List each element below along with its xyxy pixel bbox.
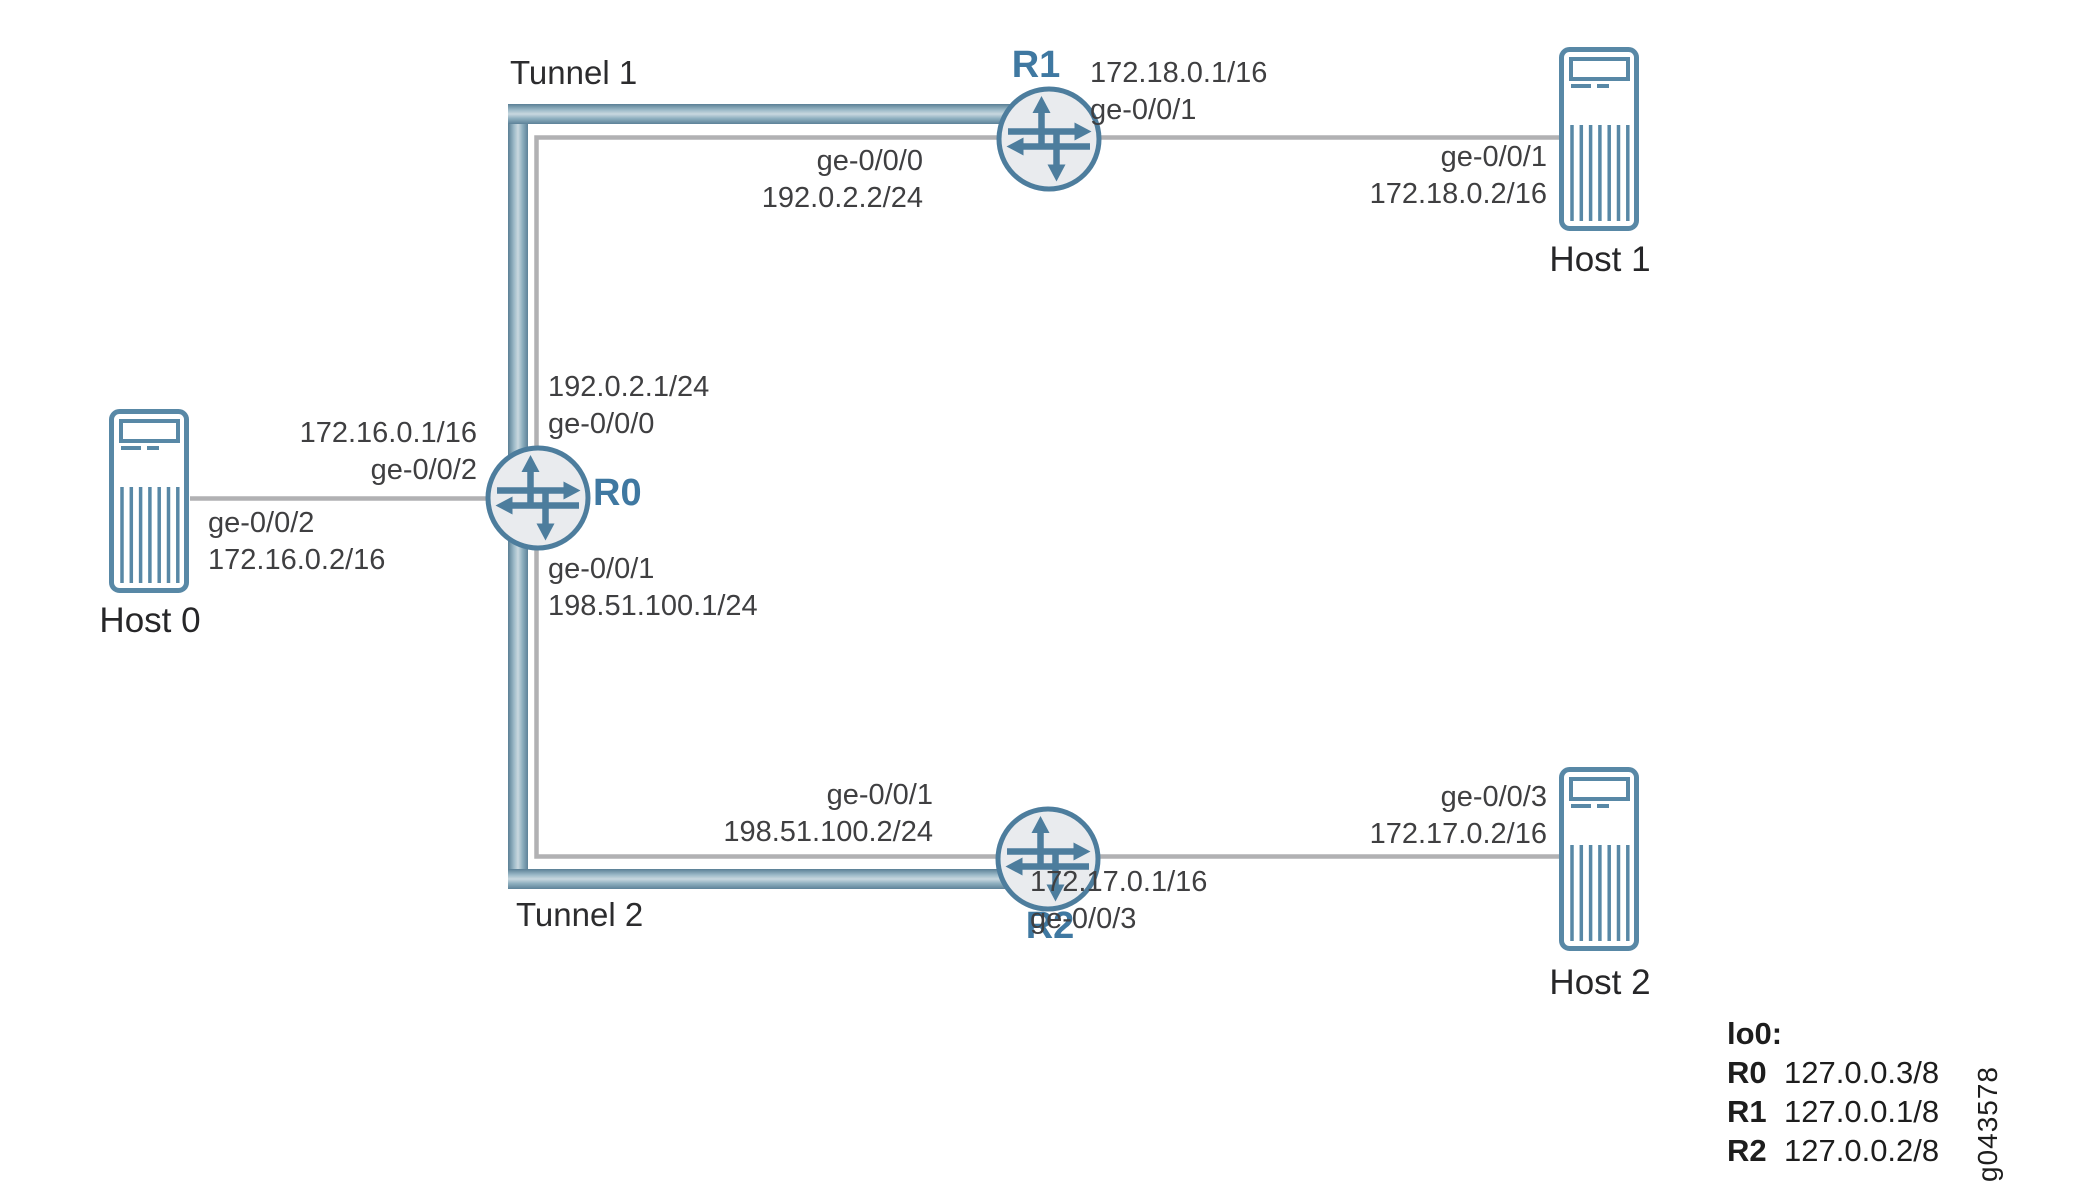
iface-label-r2-to-host2: 172.17.0.1/16 ge-0/0/3 [1030,864,1207,938]
iface-label-r0-to-r1: 192.0.2.1/24 ge-0/0/0 [548,369,709,443]
iface-label-r2-to-r0: ge-0/0/1 198.51.100.2/24 [723,777,933,851]
iface-label-r0-to-host0: 172.16.0.1/16 ge-0/0/2 [300,415,477,489]
iface-line: ge-0/0/3 [1030,901,1207,938]
legend-title: lo0: [1727,1014,1939,1053]
host-label-host2: Host 2 [1520,963,1680,1003]
router-icon-r0 [483,443,593,553]
network-topology-diagram: Tunnel 1 Tunnel 2 R0 R1 R2 Host 0 Host 1… [0,0,2100,1197]
figure-id: g043578 [1972,1066,2004,1182]
router-label-r0: R0 [593,472,642,515]
iface-line: 192.0.2.1/24 [548,369,709,406]
tunnel2-band-horizontal [508,869,1049,889]
legend-row-r0: R0127.0.0.3/8 [1727,1053,1939,1092]
iface-line: ge-0/0/1 [723,777,933,814]
iface-line: 172.16.0.2/16 [208,542,385,579]
legend-router-name: R1 [1727,1092,1784,1131]
host-icon-host0 [108,408,190,594]
iface-line: ge-0/0/0 [548,406,709,443]
iface-line: ge-0/0/1 [1090,92,1267,129]
iface-line: ge-0/0/0 [762,143,923,180]
iface-label-r1-to-r0: ge-0/0/0 192.0.2.2/24 [762,143,923,217]
host-icon-host2 [1558,766,1640,952]
iface-line: 172.17.0.1/16 [1030,864,1207,901]
iface-label-r1-to-host1: 172.18.0.1/16 ge-0/0/1 [1090,55,1267,129]
iface-line: 192.0.2.2/24 [762,180,923,217]
legend-row-r2: R2127.0.0.2/8 [1727,1131,1939,1170]
iface-label-host1-to-r1: ge-0/0/1 172.18.0.2/16 [1370,139,1547,213]
iface-line: ge-0/0/2 [300,452,477,489]
tunnel1-label: Tunnel 1 [510,54,637,92]
iface-label-host0-to-r0: ge-0/0/2 172.16.0.2/16 [208,505,385,579]
tunnel1-band-horizontal [508,104,1049,124]
router-label-r1: R1 [976,44,1096,87]
iface-line: ge-0/0/1 [1370,139,1547,176]
legend-router-name: R2 [1727,1131,1784,1170]
legend-loopback-ip: 127.0.0.3/8 [1784,1055,1939,1090]
iface-label-r0-to-r2: ge-0/0/1 198.51.100.1/24 [548,551,758,625]
iface-line: ge-0/0/2 [208,505,385,542]
iface-line: ge-0/0/1 [548,551,758,588]
legend-row-r1: R1127.0.0.1/8 [1727,1092,1939,1131]
link-r0-r1-r2-hosts [537,138,1561,857]
iface-line: 198.51.100.1/24 [548,588,758,625]
router-icon-r1 [994,84,1104,194]
iface-label-host2-to-r2: ge-0/0/3 172.17.0.2/16 [1370,779,1547,853]
iface-line: 172.18.0.1/16 [1090,55,1267,92]
legend-router-name: R0 [1727,1053,1784,1092]
tunnel2-label: Tunnel 2 [516,896,643,934]
iface-line: 172.17.0.2/16 [1370,816,1547,853]
iface-line: ge-0/0/3 [1370,779,1547,816]
lo0-legend: lo0: R0127.0.0.3/8 R1127.0.0.1/8 R2127.0… [1727,1014,1939,1170]
host-label-host0: Host 0 [70,601,230,641]
host-icon-host1 [1558,46,1640,232]
host-label-host1: Host 1 [1520,240,1680,280]
legend-loopback-ip: 127.0.0.2/8 [1784,1133,1939,1168]
iface-line: 172.16.0.1/16 [300,415,477,452]
iface-line: 172.18.0.2/16 [1370,176,1547,213]
iface-line: 198.51.100.2/24 [723,814,933,851]
legend-loopback-ip: 127.0.0.1/8 [1784,1094,1939,1129]
